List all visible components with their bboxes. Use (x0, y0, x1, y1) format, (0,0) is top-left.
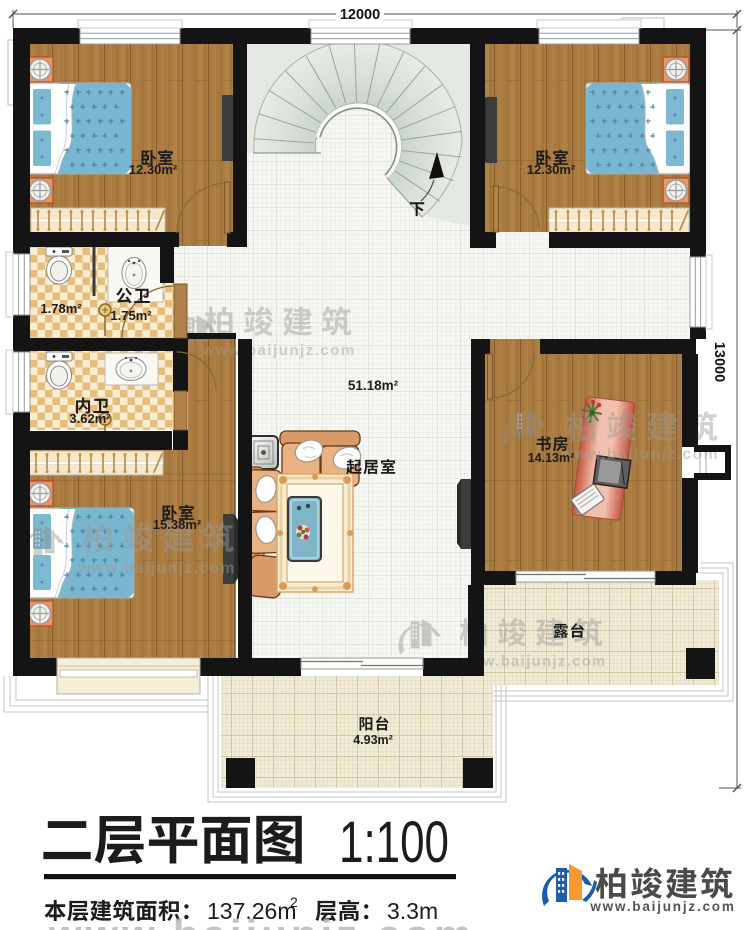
svg-text:www.baijunjz.com: www.baijunjz.com (589, 899, 735, 914)
svg-text:15.38m²: 15.38m² (153, 517, 202, 532)
svg-text:2: 2 (290, 894, 298, 910)
svg-text:4.93m²: 4.93m² (353, 733, 393, 747)
svg-text:12.30m²: 12.30m² (527, 162, 576, 177)
svg-text:14.13m²: 14.13m² (528, 451, 575, 465)
svg-text:12000: 12000 (340, 7, 380, 23)
svg-text:www.baijunjz.com: www.baijunjz.com (201, 342, 355, 359)
svg-text:1:100: 1:100 (339, 810, 449, 875)
svg-text:3.62m²: 3.62m² (69, 411, 111, 426)
svg-text:www.baijunjz.com: www.baijunjz.com (48, 911, 475, 930)
svg-text:13000: 13000 (711, 342, 727, 382)
svg-text:www.baijunjz.com: www.baijunjz.com (77, 560, 236, 577)
svg-text:1.78m²: 1.78m² (40, 301, 82, 316)
svg-text:51.18m²: 51.18m² (348, 378, 399, 393)
svg-text:1.75m²: 1.75m² (110, 308, 152, 323)
svg-text:12.30m²: 12.30m² (129, 162, 178, 177)
